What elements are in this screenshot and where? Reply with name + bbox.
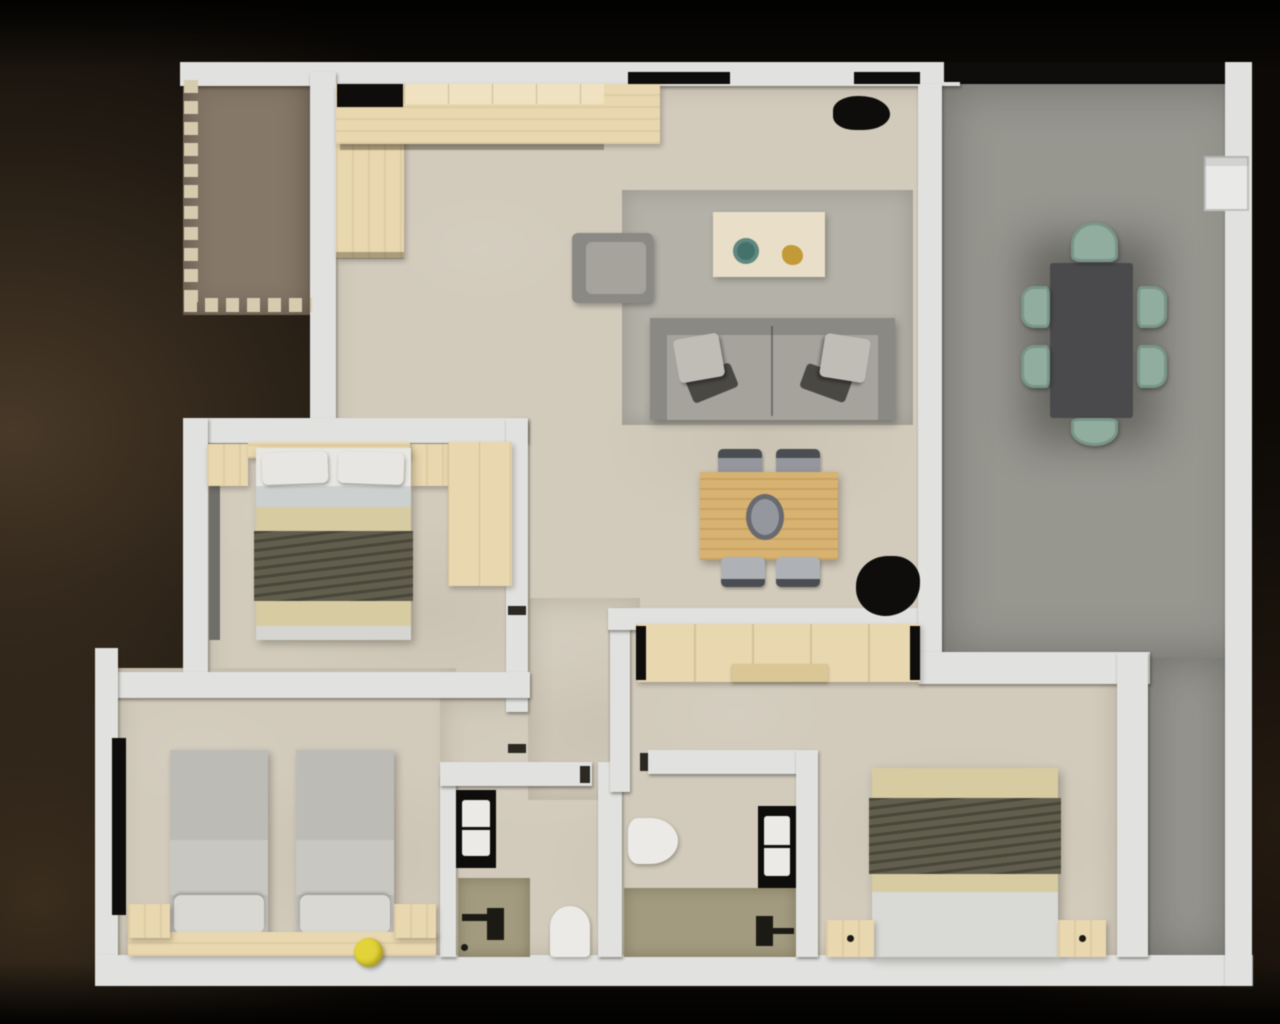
sofa-seam [771,326,773,416]
double-bed-throw [254,531,413,601]
master-bed-throw [869,798,1061,874]
bath-right-sink-divider [764,845,790,848]
apartment-plan [0,0,1280,1024]
master-nightstand-left-knob [847,935,854,942]
master-bed-sheet [872,892,1058,957]
porch-dash-border-left [184,80,198,302]
sofa-arm-left [650,318,667,420]
bath-right-shower-head [756,916,773,946]
terrace-glass-front [944,62,1225,82]
dining-chair-top [1071,222,1118,262]
master-closet-end-right [910,626,920,680]
porch-dash-border-bottom [184,298,312,312]
coffee-table [713,212,825,277]
double-bed-pillow-right [337,451,404,485]
dining-chair-right-1 [1137,286,1167,328]
door-jamb-bedroom-double-2 [508,744,526,753]
sofa-arm-right [878,318,895,420]
living-window-frame-2 [854,72,920,84]
bath-right-shower-arm [772,928,794,934]
master-nightstand-right [1058,920,1106,957]
bath-left-toilet [550,906,590,957]
master-bed [872,768,1058,957]
double-bed-sheet [256,486,411,507]
double-window-frame [209,475,220,640]
armchair-seat [586,242,646,294]
double-wardrobe [448,442,512,586]
terrace-ac-unit [1204,156,1249,211]
twin-bed-2-pillow [300,895,390,933]
master-nightstand-left [826,920,874,957]
master-bed-blanket-edge [872,874,1058,892]
twin-bed-2-mid [296,840,394,895]
bath-left-sink-divider [462,827,490,830]
double-bed-blanket-bottom [256,601,411,626]
twin-bed-1 [170,750,268,936]
double-nightstand-left [207,444,248,486]
double-nightstand-right [410,444,451,486]
terrace-floor-strip [1148,658,1230,958]
wall-hall-right [610,608,630,792]
door-jamb-bath-right [640,753,648,771]
counter-shadow [340,144,604,150]
floor-plan-render [0,0,1280,1024]
twin-headboard-shelf [128,932,436,956]
wall-bedroom-double-top [183,418,528,443]
wall-outer-bottom [95,955,1253,986]
entry-porch-floor [183,75,311,315]
black-plant-top [833,96,890,130]
door-jamb-bedroom-double-1 [508,606,526,615]
wall-master-right [1117,652,1148,957]
terrace-dining-table [1050,263,1133,418]
dining-chair-right-2 [1137,345,1167,388]
desk-chair-bottom-2 [776,557,820,587]
sofa [650,318,895,420]
dining-chair-left-1 [1021,286,1050,328]
living-window-frame-1 [628,72,730,84]
wall-mid-horizontal [95,672,530,698]
wall-bath-left-top [440,762,592,786]
master-closet-end-left [636,626,646,680]
double-bed-foot [256,626,411,640]
armchair [572,233,653,303]
wall-bath-right-side [796,750,818,957]
desk-chair-center [746,494,784,540]
wall-bedroom-double-left [183,418,208,678]
twin-bed-1-mid [170,840,268,895]
yellow-pouf [354,938,383,967]
wall-terrace-left [918,84,942,658]
master-closet-row [636,624,920,682]
bath-right-vanity [758,806,796,888]
counter-shadow-2 [336,252,404,259]
double-bed-pillow-left [261,451,328,485]
door-jamb-bath-left [580,766,590,783]
bath-left-shower-head [487,908,504,940]
sofa-cushion-1 [673,332,726,383]
dining-chair-left-2 [1021,345,1050,388]
double-bed-blanket-top [256,507,411,531]
decor-gold [782,245,803,265]
wall-bath-right-top [648,750,812,774]
cooktop-appliance [337,84,403,107]
desk-chair-bottom-1 [721,557,765,587]
double-bed [256,448,411,640]
sofa-cushion-2 [819,333,871,384]
master-closet-shelf [732,664,828,682]
twin-bed-2 [296,750,394,936]
wall-porch-divider [310,72,336,428]
decor-plate-teal [733,238,759,264]
wall-terrace-bottom [918,652,1150,684]
twin-side-table-right [394,904,436,938]
master-nightstand-right-knob [1079,935,1086,942]
wall-top [180,62,960,86]
bath-left-vanity [456,790,496,868]
twin-bed-1-pillow [174,895,264,933]
bath-left-drain [461,944,468,951]
twin-window-frame [112,738,126,915]
kitchen-upper-cabinets [404,84,604,104]
bath-left-shower-arm [462,914,488,921]
twin-side-table-left [128,904,170,938]
wall-bath-left-side [440,775,456,957]
